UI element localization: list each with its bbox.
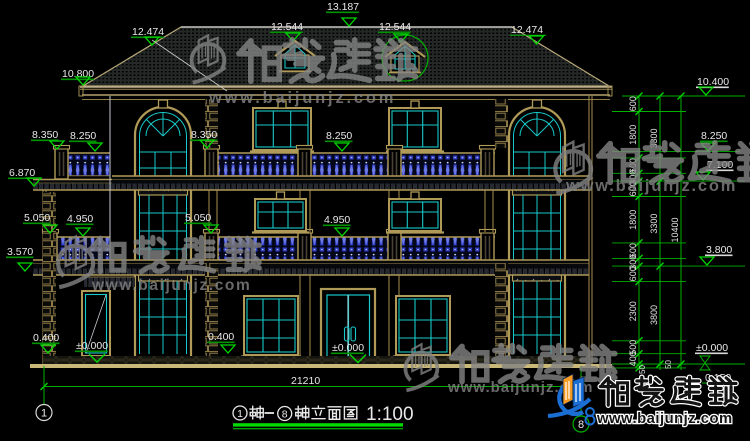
svg-text:600: 600: [628, 266, 638, 281]
svg-text:4.950: 4.950: [324, 214, 350, 226]
svg-text:0.400: 0.400: [33, 332, 59, 344]
svg-text:www.baijunjz.com: www.baijunjz.com: [565, 177, 737, 195]
svg-text:1: 1: [41, 408, 47, 420]
svg-text:10.400: 10.400: [697, 76, 729, 88]
svg-text:12.474: 12.474: [511, 24, 543, 36]
svg-text:21210: 21210: [291, 375, 320, 387]
svg-text:www.baijunjz.com: www.baijunjz.com: [91, 277, 251, 294]
svg-text:3.570: 3.570: [7, 246, 33, 258]
svg-text:1800: 1800: [628, 125, 638, 145]
svg-text:0.400: 0.400: [208, 331, 234, 343]
svg-text:2300: 2300: [628, 301, 638, 321]
svg-text:400: 400: [628, 351, 638, 366]
svg-text:600: 600: [628, 96, 638, 111]
svg-text:8.250: 8.250: [326, 130, 352, 142]
svg-text:±0.000: ±0.000: [332, 342, 364, 354]
svg-text:3.800: 3.800: [706, 244, 732, 256]
svg-text:10400: 10400: [670, 217, 680, 242]
svg-text:1: 1: [237, 408, 243, 420]
svg-text:8.350: 8.350: [32, 129, 58, 141]
svg-text:±0.000: ±0.000: [76, 340, 108, 352]
svg-text:3800: 3800: [649, 305, 659, 325]
svg-text:50: 50: [638, 365, 647, 374]
svg-text:8.250: 8.250: [70, 130, 96, 142]
svg-text:4.950: 4.950: [67, 213, 93, 225]
svg-text:±0.000: ±0.000: [696, 342, 728, 354]
svg-text:5.050: 5.050: [24, 212, 50, 224]
svg-text:8: 8: [282, 409, 288, 421]
svg-text:50: 50: [664, 360, 673, 369]
svg-text:6.870: 6.870: [9, 167, 35, 179]
svg-text:1800: 1800: [628, 210, 638, 230]
svg-text:www.baijunjz.com: www.baijunjz.com: [208, 89, 396, 107]
svg-text:8: 8: [578, 419, 584, 431]
svg-text:12.474: 12.474: [132, 26, 164, 38]
svg-text:8.350: 8.350: [191, 129, 217, 141]
svg-text:13.187: 13.187: [327, 1, 359, 13]
svg-text:5.050: 5.050: [185, 212, 211, 224]
svg-text:12.544: 12.544: [271, 21, 303, 33]
svg-text:www.baijunjz.com: www.baijunjz.com: [596, 411, 733, 427]
svg-text:12.544: 12.544: [379, 21, 411, 33]
svg-text:1:100: 1:100: [366, 404, 414, 425]
svg-text:3300: 3300: [649, 214, 659, 234]
